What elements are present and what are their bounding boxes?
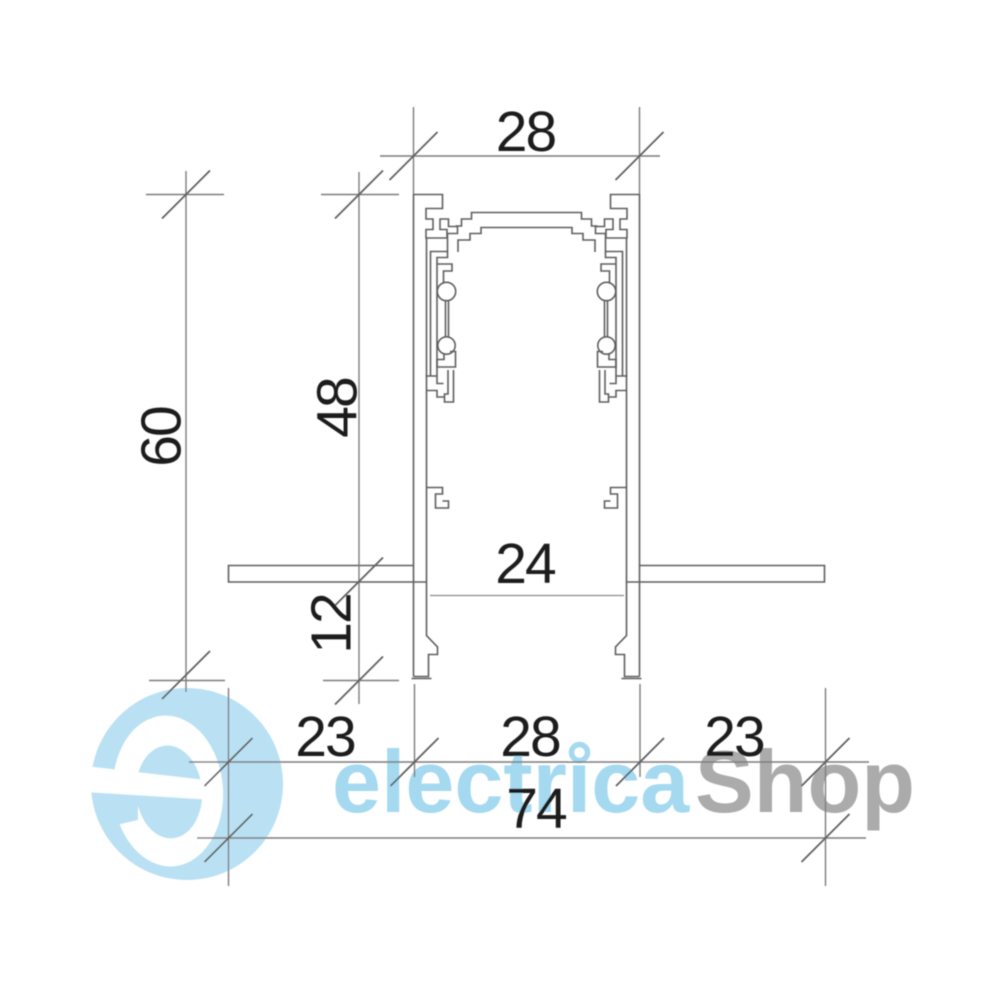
svg-text:28: 28: [496, 100, 556, 164]
svg-text:23: 23: [704, 705, 764, 769]
svg-text:12: 12: [300, 594, 364, 653]
svg-text:74: 74: [506, 777, 567, 841]
svg-text:28: 28: [500, 705, 560, 769]
svg-text:60: 60: [130, 407, 194, 467]
svg-text:23: 23: [295, 705, 355, 769]
svg-text:48: 48: [306, 378, 370, 438]
svg-text:24: 24: [495, 532, 556, 596]
